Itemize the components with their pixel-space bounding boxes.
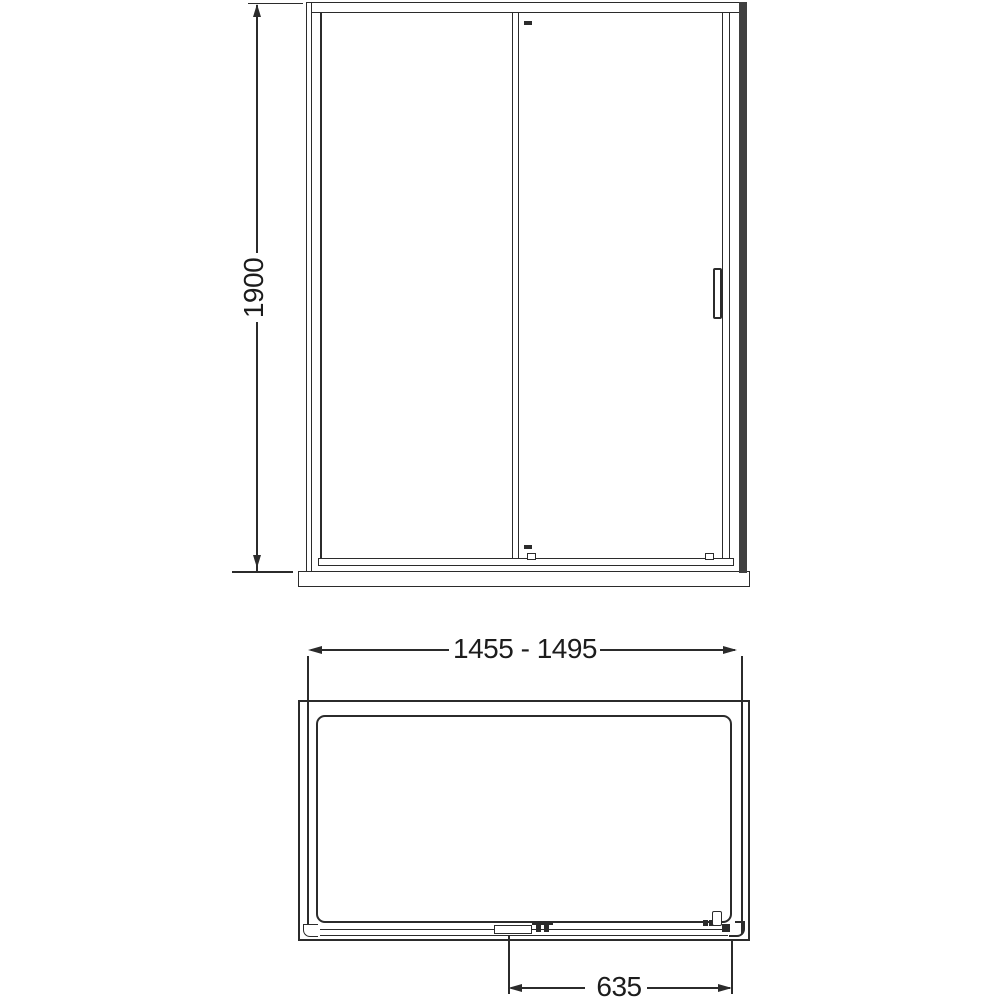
opening-dimension-line-left: [511, 987, 585, 989]
opening-dimension: 635: [0, 0, 1000, 1000]
opening-dimension-label: 635: [593, 973, 644, 1000]
arrow-left-icon: [508, 984, 522, 992]
arrow-right-icon: [718, 984, 732, 992]
technical-drawing-canvas: 1900 1455 - 1495: [0, 0, 1000, 1000]
